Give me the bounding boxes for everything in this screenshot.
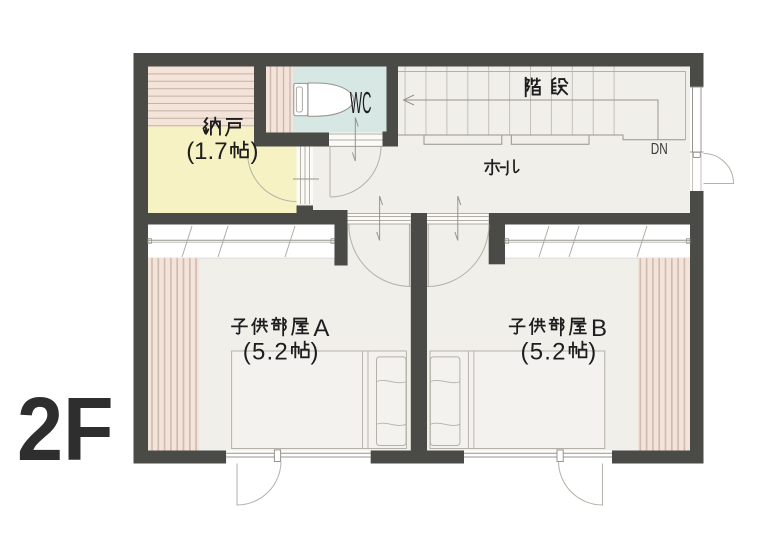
svg-text:(5.2: (5.2 [521,338,567,365]
svg-text:DN: DN [651,141,668,158]
svg-text:): ) [251,138,259,165]
svg-text:): ) [311,338,319,365]
svg-text:WC: WC [350,85,372,120]
svg-text:(1.7: (1.7 [186,138,227,165]
svg-text:): ) [588,338,596,365]
svg-text:(5.2: (5.2 [243,338,289,365]
